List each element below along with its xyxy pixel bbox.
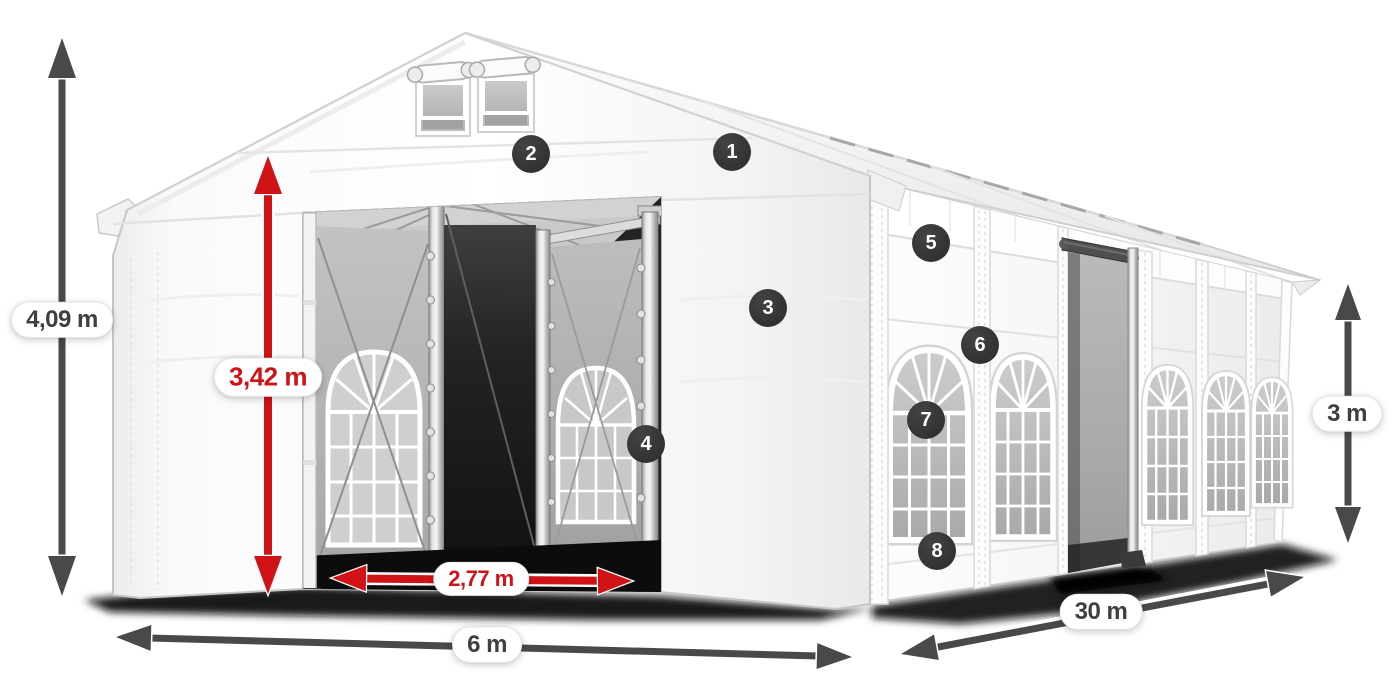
feature-marker-7[interactable]: 7 (907, 401, 945, 439)
inner-door-window-left (328, 352, 420, 545)
total-height-label: 4,09 m (11, 302, 113, 338)
front-entrance (295, 196, 668, 599)
wall-height-label: 3 m (1312, 396, 1382, 432)
gable-vent-right (469, 56, 541, 128)
feature-marker-3[interactable]: 3 (749, 289, 787, 327)
entrance-width-label: 2,77 m (433, 562, 529, 596)
feature-marker-8[interactable]: 8 (918, 532, 956, 570)
entrance-height-label: 3,42 m (214, 358, 322, 397)
side-length-label: 30 m (1060, 594, 1143, 630)
sidewall-window-1 (890, 350, 968, 540)
side-entrance (1059, 238, 1146, 573)
sidewall-window-4 (1205, 374, 1247, 513)
feature-marker-1[interactable]: 1 (713, 133, 751, 171)
feature-marker-5[interactable]: 5 (912, 224, 950, 262)
gable-vent-left (407, 61, 477, 132)
feature-marker-2[interactable]: 2 (512, 135, 550, 173)
inner-door-window-right (558, 368, 634, 522)
sidewall-window-2 (993, 357, 1053, 537)
sidewall-window-5 (1254, 380, 1290, 505)
feature-marker-6[interactable]: 6 (961, 326, 999, 364)
feature-marker-4[interactable]: 4 (627, 425, 665, 463)
sidewall-window-3 (1145, 368, 1190, 522)
front-width-label: 6 m (452, 627, 522, 663)
product-dimension-diagram: 4,09 m 3,42 m 2,77 m 6 m 30 m 3 m 1 2 3 … (0, 0, 1400, 700)
tent-illustration (0, 0, 1400, 700)
